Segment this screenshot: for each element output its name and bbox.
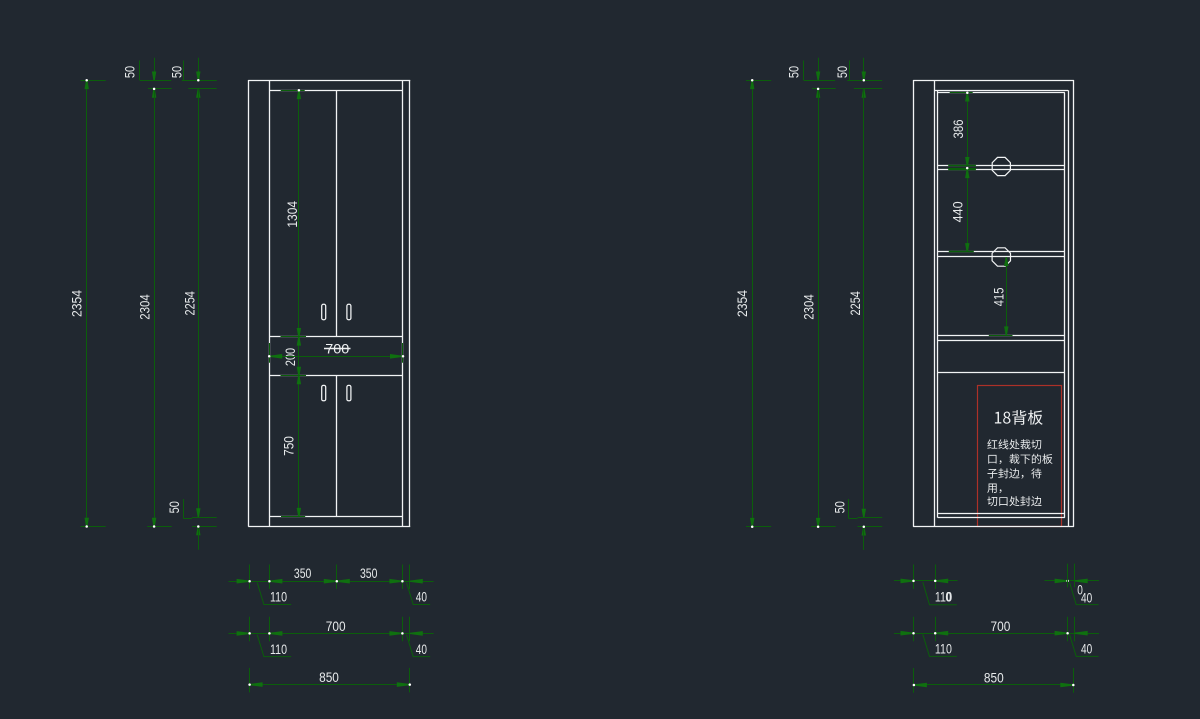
svg-text:50: 50 (786, 66, 801, 78)
svg-text:350: 350 (294, 566, 311, 581)
svg-text:40: 40 (1081, 590, 1092, 605)
svg-text:750: 750 (281, 436, 296, 456)
svg-text:40: 40 (416, 642, 427, 657)
svg-text:700: 700 (991, 619, 1011, 634)
svg-text:440: 440 (951, 201, 966, 222)
svg-text:700: 700 (326, 619, 346, 634)
svg-text:350: 350 (360, 566, 377, 581)
svg-text:40: 40 (1081, 641, 1092, 656)
svg-text:2304: 2304 (801, 294, 816, 320)
svg-text:110: 110 (935, 641, 952, 656)
svg-text:386: 386 (951, 120, 966, 139)
svg-text:50: 50 (169, 66, 184, 78)
svg-text:50: 50 (835, 66, 850, 78)
svg-text:40: 40 (416, 590, 427, 605)
svg-text:1304: 1304 (285, 201, 300, 228)
svg-text:850: 850 (984, 671, 1004, 686)
svg-text:2254: 2254 (183, 291, 198, 316)
svg-text:2354: 2354 (70, 290, 85, 317)
svg-text:2304: 2304 (137, 294, 152, 320)
svg-text:110: 110 (270, 590, 287, 605)
svg-text:50: 50 (167, 501, 182, 513)
svg-text:50: 50 (122, 66, 137, 78)
svg-text:0: 0 (947, 589, 953, 604)
svg-text:415: 415 (991, 288, 1006, 307)
svg-text:2354: 2354 (735, 290, 750, 317)
svg-text:50: 50 (832, 501, 847, 513)
svg-text:2254: 2254 (848, 291, 863, 316)
svg-text:850: 850 (319, 670, 339, 685)
svg-text:110: 110 (270, 642, 287, 657)
